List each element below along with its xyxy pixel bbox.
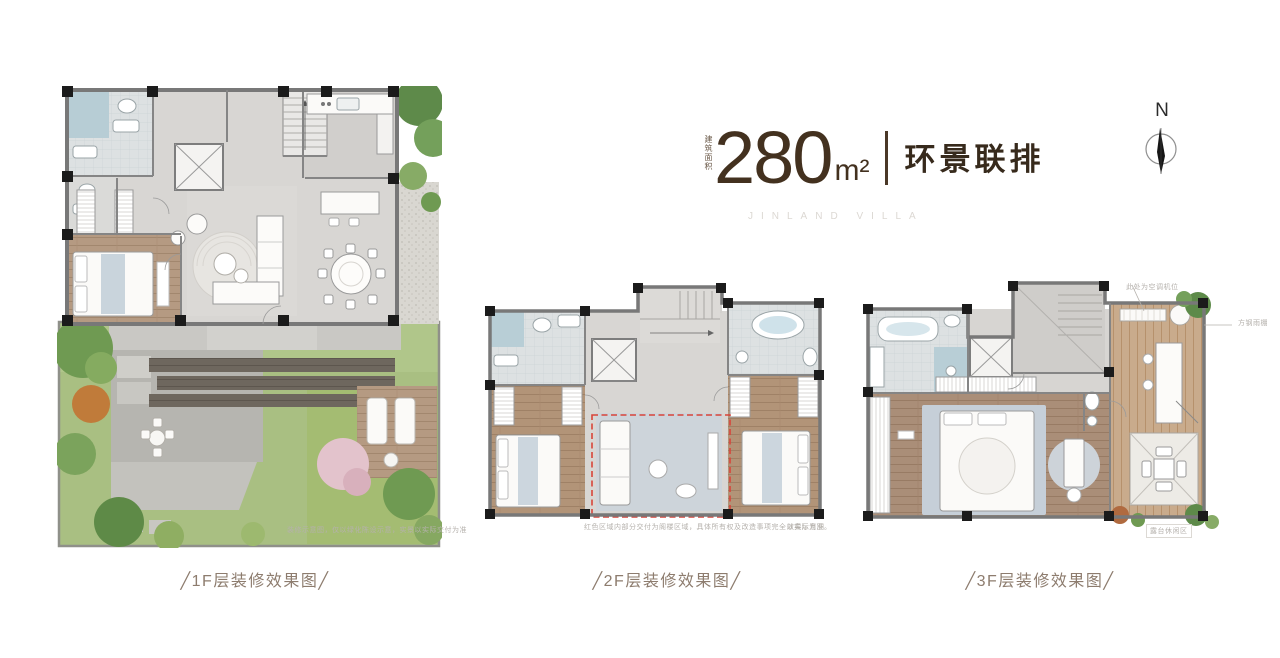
area-value: 280 — [714, 128, 831, 187]
note-3f-terrace: 露台休闲区 — [1146, 524, 1192, 538]
caption-1f: ╱1F层装修效果图╱ — [95, 567, 415, 591]
caption-2f: ╱2F层装修效果图╱ — [507, 567, 827, 591]
floorplan-1f — [57, 86, 442, 553]
floorplan-2f-svg — [480, 283, 832, 523]
note-2f-right: 效果示意图 — [787, 522, 825, 532]
subtitle-en: JINLAND VILLA — [748, 211, 1044, 222]
floorplan-1f-svg — [57, 86, 442, 548]
floorplan-3f-svg — [858, 281, 1233, 541]
compass-north-label: N — [1140, 100, 1184, 122]
compass: N — [1140, 100, 1184, 183]
area-label-vertical: 建筑面积 — [704, 135, 712, 171]
area-unit: m² — [834, 156, 869, 186]
title-divider — [885, 131, 888, 185]
title-block: 建筑面积 280 m² 环景联排 JINLAND VILLA — [704, 128, 1044, 222]
annotation-3f-canopy: 方钢雨棚 — [1238, 318, 1268, 328]
floorplan-3f — [858, 281, 1233, 546]
caption-3f: ╱3F层装修效果图╱ — [880, 567, 1200, 591]
annotation-3f-ac: 此处为空调机位 — [1126, 282, 1179, 292]
product-name: 环景联排 — [904, 134, 1044, 179]
floorplan-poster: 建筑面积 280 m² 环景联排 JINLAND VILLA N — [0, 0, 1280, 658]
compass-icon — [1140, 122, 1184, 178]
note-1f: 装修示意图，仅以绿化陈设示意，实景以实际交付为准 — [287, 525, 467, 535]
floorplan-2f — [480, 283, 832, 528]
